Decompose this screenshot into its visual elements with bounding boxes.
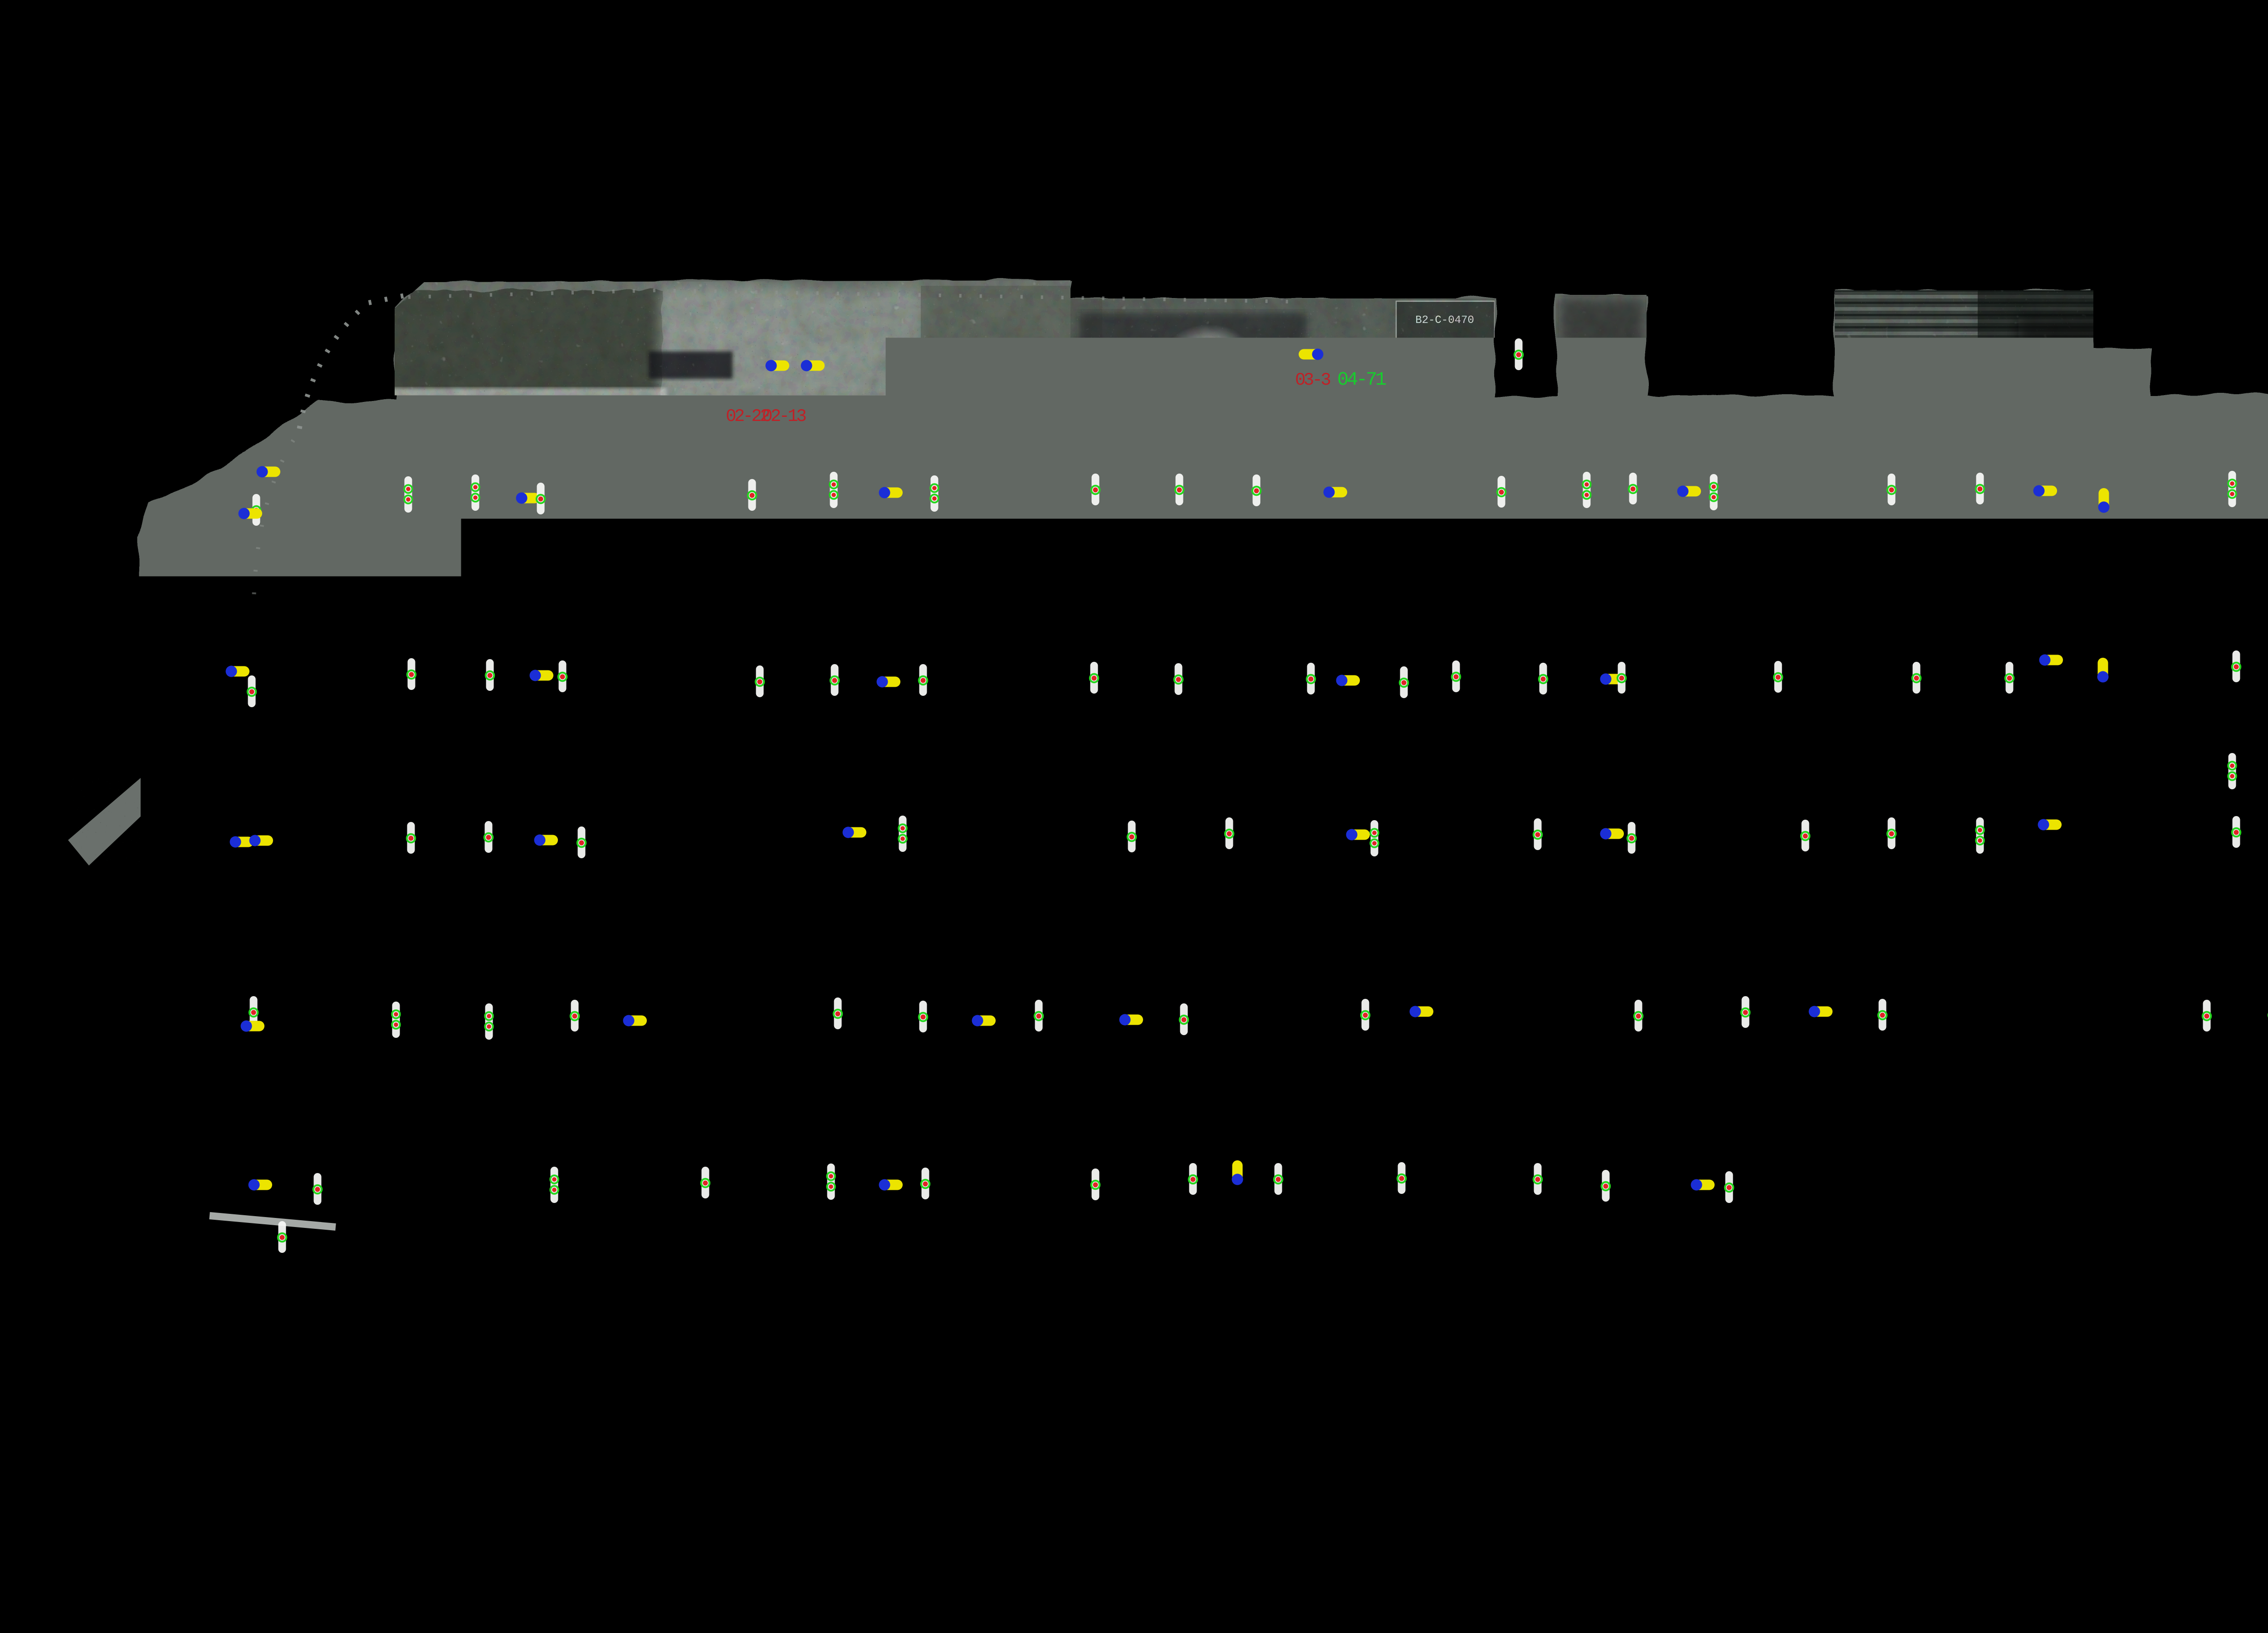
svg-text:04-56: 04-56 [972,1183,1021,1205]
svg-text:02-13: 02-13 [762,406,806,426]
svg-text:04-80: 04-80 [229,710,278,732]
svg-text:03-3: 03-3 [1295,370,1330,390]
svg-text:05-20: 05-20 [1896,685,1945,707]
svg-text:05-42: 05-42 [1938,1031,1987,1053]
svg-text:02-07: 02-07 [361,1211,404,1231]
svg-text:04-38: 04-38 [1888,837,1937,859]
svg-text:01-15: 01-15 [1583,689,1627,709]
svg-text:01-21: 01-21 [1243,851,1287,871]
svg-text:01-10: 01-10 [2018,679,2061,699]
svg-text:04-11: 04-11 [1878,508,1927,530]
svg-text:04-98: 04-98 [233,1109,281,1131]
svg-text:04-99: 04-99 [240,1182,289,1203]
svg-text:04-51: 04-51 [382,1046,431,1068]
svg-text:05-32: 05-32 [571,837,619,859]
svg-text:04-23: 04-23 [1454,685,1502,707]
svg-text:01-28: 01-28 [1995,1026,2039,1046]
svg-text:04-03: 04-03 [547,505,595,527]
svg-text:05-18: 05-18 [2217,663,2266,684]
svg-text:05-59: 05-59 [1494,1181,1542,1203]
svg-text:04-07: 04-07 [1244,509,1292,531]
svg-text:04-70: 04-70 [900,509,949,531]
svg-text:01-19: 01-19 [526,851,570,871]
svg-text:05-70: 05-70 [2245,1219,2268,1241]
svg-text:05-48: 05-48 [990,1031,1039,1053]
svg-text:01-30: 01-30 [1315,1041,1359,1061]
svg-text:05-63: 05-63 [2065,1186,2114,1208]
svg-text:02-05: 02-05 [853,507,896,527]
svg-text:04-36: 04-36 [1525,839,1574,861]
svg-text:04-64: 04-64 [2142,1188,2191,1209]
svg-text:04-05: 04-05 [1085,496,1133,518]
svg-text:05-33: 05-33 [1083,839,1132,861]
svg-text:04-30: 04-30 [411,851,459,873]
svg-text:01-22: 01-22 [1599,850,1642,870]
svg-text:01-24: 01-24 [2074,697,2118,717]
svg-text:04-13: 04-13 [2209,506,2258,528]
svg-text:04-96: 04-96 [735,1025,783,1047]
svg-text:05-69: 05-69 [1669,1202,1718,1223]
svg-text:05-01: 05-01 [391,512,440,533]
svg-text:04-10: 04-10 [1733,491,1781,513]
svg-text:04-22: 04-22 [1539,674,1588,696]
svg-text:04-09: 04-09 [1580,502,1628,523]
svg-text:04-94: 04-94 [905,1045,954,1066]
svg-text:04-02: 04-02 [457,510,506,532]
svg-text:01-18: 01-18 [228,839,277,861]
svg-text:04-50: 04-50 [500,1045,549,1066]
svg-text:04-72: 04-72 [1626,508,1675,530]
svg-text:04-95: 04-95 [819,1043,867,1065]
svg-text:04-91: 04-91 [2225,1037,2268,1059]
svg-text:01-23: 01-23 [2009,848,2053,868]
svg-text:05-08: 05-08 [1501,499,1549,521]
svg-text:01-29: 01-29 [1656,1049,1699,1069]
svg-text:04-71: 04-71 [1337,369,1386,391]
svg-text:B2-A-0148: B2-A-0148 [997,897,1022,902]
svg-text:01-05: 01-05 [1313,509,1357,529]
svg-text:04-69: 04-69 [734,512,782,533]
svg-text:05-12: 05-12 [1984,499,2032,520]
svg-text:04-54: 04-54 [736,1193,785,1215]
svg-text:04-26: 04-26 [1281,670,1329,692]
svg-text:04-78: 04-78 [754,683,802,704]
svg-text:04-77: 04-77 [864,682,912,704]
svg-text:05-68: 05-68 [1644,853,1693,875]
svg-text:04-44: 04-44 [1553,1032,1602,1054]
svg-text:04-97: 04-97 [233,1026,281,1048]
svg-text:05-57: 05-57 [1226,1183,1274,1204]
svg-text:05-37: 05-37 [1793,839,1841,861]
svg-text:01-14: 01-14 [937,684,981,704]
svg-text:05-43: 05-43 [1707,1031,1755,1053]
svg-text:01-02: 01-02 [254,500,298,520]
svg-text:01-08: 01-08 [2082,534,2126,554]
svg-text:01-10: 01-10 [206,682,250,702]
svg-text:01-04-82: 01-04-82 [907,851,977,871]
svg-text:05-34: 05-34 [1193,847,1242,869]
svg-text:04-35: 04-35 [1319,837,1368,859]
svg-text:05-55: 05-55 [809,1183,857,1205]
svg-text:04-47: 04-47 [1167,1028,1215,1050]
svg-text:04-68: 04-68 [213,531,262,552]
svg-text:04-25: 04-25 [1408,670,1456,691]
svg-text:01-04: 01-04 [2250,1192,2268,1212]
svg-text:04-39: 04-39 [2219,841,2268,862]
svg-text:04-84: 04-84 [429,1209,478,1231]
svg-text:05-62: 05-62 [1946,1201,1994,1222]
svg-text:04-21: 04-21 [1786,674,1835,696]
svg-text:02-08: 02-08 [1615,1202,1658,1222]
svg-text:05-67: 05-67 [1965,840,2014,861]
svg-text:04-93: 04-93 [1454,1042,1502,1064]
svg-text:04-79: 04-79 [538,690,586,712]
svg-text:05-05: 05-05 [1172,497,1220,519]
svg-text:04-58: 04-58 [1362,1178,1411,1200]
svg-text:02-07: 02-07 [1431,1196,1475,1216]
svg-text:02-06: 02-06 [903,1198,946,1217]
svg-text:B2-A-0149: B2-A-0149 [1022,897,1046,902]
svg-text:05-27: 05-27 [1006,670,1054,692]
svg-text:01-07: 01-07 [2041,509,2085,529]
svg-text:04-29: 04-29 [389,681,438,703]
svg-text:05-45: 05-45 [1387,1030,1436,1052]
